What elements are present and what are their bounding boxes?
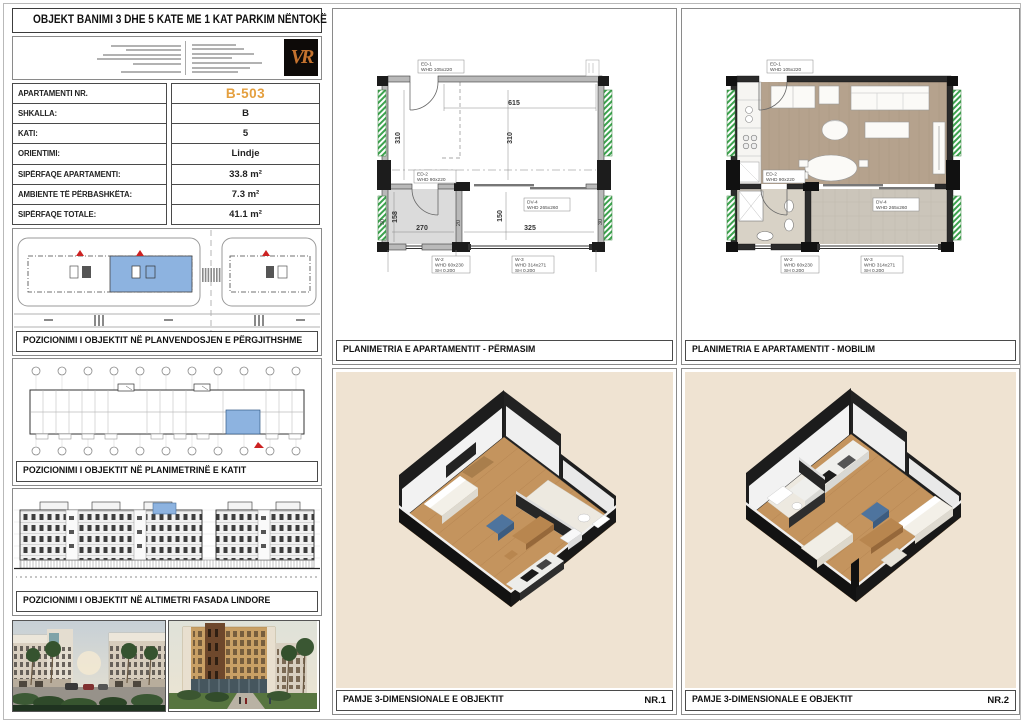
elevation-drawing [14, 490, 320, 592]
svg-text:WHD 265x260: WHD 265x260 [527, 205, 559, 211]
window-w3 [817, 244, 941, 250]
row-label: APARTAMENTI NR. [13, 84, 166, 104]
caption-site-plan: POZICIONIMI I OBJEKTIT NË PLANVENDOSJEN … [16, 331, 318, 352]
row-label: AMBIENTE TË PËRBASHKËTA: [13, 185, 166, 205]
window-w3 [468, 244, 592, 250]
svg-text:SH 0.200: SH 0.200 [515, 268, 535, 274]
view3d-1-background [336, 372, 673, 688]
apartment-table-values: B-503 B 5 Lindje 33.8 m² 7.3 m² 41.1 m² [171, 83, 320, 225]
svg-text:WHD 60x230: WHD 60x230 [784, 263, 813, 269]
label-w3: W-3 WHD 314x271 SH 0.200 [861, 256, 903, 274]
floor-plan-drawing [14, 360, 320, 462]
sliding-door-dv4 [474, 184, 586, 189]
elevation-ground [14, 560, 320, 580]
label-dv4: DV-4 WHD 265x260 [524, 198, 570, 211]
plan-furnished-panel: ED-1 WHD 105x220 ED-2 WHD 90x220 DV-4 WH… [681, 8, 1020, 365]
svg-text:30: 30 [598, 219, 604, 225]
elevation-highlight-unit [153, 503, 176, 514]
site-plan-drawing [14, 230, 320, 332]
caption-view3d-1: PAMJE 3-DIMENSIONALE E OBJEKTIT NR.1 [336, 690, 673, 711]
view3d-panel-2: PAMJE 3-DIMENSIONALE E OBJEKTIT NR.2 [681, 368, 1020, 715]
elevation-building-right [216, 502, 314, 560]
caption-plan-furnished: PLANIMETRIA E APARTAMENTIT - MOBILIM [685, 340, 1016, 361]
site-building-left [28, 250, 192, 292]
firm-info-left [91, 42, 181, 76]
svg-text:WHD 265x260: WHD 265x260 [876, 205, 908, 211]
project-info-block: VR [12, 36, 322, 80]
svg-text:158: 158 [392, 211, 399, 223]
svg-text:W-2: W-2 [435, 257, 444, 263]
render-photo-1 [12, 620, 166, 712]
svg-text:ED-1: ED-1 [421, 62, 432, 68]
apartment-table-labels: APARTAMENTI NR. SHKALLA: KATI: ORIENTIMI… [12, 83, 167, 225]
site-building-right [230, 250, 310, 292]
iso-apartment-2 [746, 388, 961, 602]
svg-text:150: 150 [497, 210, 504, 222]
label-corner [586, 60, 599, 76]
label-w2: W-2 WHD 60x230 SH 0.200 [781, 256, 819, 274]
label-w2: W-2 WHD 60x230 SH 0.200 [432, 256, 470, 274]
svg-text:W-3: W-3 [515, 257, 524, 263]
apartment-number: B-503 [172, 84, 319, 104]
view3d-panel-1: PAMJE 3-DIMENSIONALE E OBJEKTIT NR.1 [332, 368, 677, 715]
firm-info-right [185, 41, 272, 75]
plan-dimensions-drawing: 615 310 310 158 270 20 150 325 30 30 ED-… [334, 10, 675, 341]
svg-text:WHD 90x220: WHD 90x220 [766, 177, 795, 183]
company-logo: VR [284, 39, 318, 76]
label-ed2: ED-2 WHD 90x220 [414, 170, 456, 183]
row-label: ORIENTIMI: [13, 144, 166, 164]
dashed-lines [392, 82, 596, 170]
svg-text:W-3: W-3 [864, 257, 873, 263]
balcony-floor [811, 189, 947, 244]
kitchen [737, 82, 761, 184]
svg-text:310: 310 [507, 132, 514, 144]
svg-text:WHD 90x220: WHD 90x220 [417, 177, 446, 183]
svg-text:WHD 314x271: WHD 314x271 [864, 263, 896, 269]
svg-text:DV-4: DV-4 [527, 200, 538, 206]
floor-highlight-unit [226, 410, 260, 434]
row-value: 33.8 m² [172, 165, 319, 185]
view3d-2-number: NR.2 [987, 692, 1009, 709]
plan-furnished-drawing: ED-1 WHD 105x220 ED-2 WHD 90x220 DV-4 WH… [683, 10, 1018, 341]
iso-apartment-1 [399, 390, 616, 607]
svg-text:SH 0.200: SH 0.200 [864, 268, 884, 274]
label-dv4: DV-4 WHD 265x260 [873, 198, 919, 211]
apartment-table: APARTAMENTI NR. SHKALLA: KATI: ORIENTIMI… [12, 83, 320, 225]
site-marker-red [136, 250, 144, 256]
svg-text:SH 0.200: SH 0.200 [435, 268, 455, 274]
svg-text:WHD 105x220: WHD 105x220 [421, 67, 453, 73]
building-outline [30, 384, 304, 448]
sheet-title: OBJEKT BANIMI 3 DHE 5 KATE ME 1 KAT PARK… [12, 8, 322, 33]
svg-text:270: 270 [416, 225, 428, 232]
window-w2 [755, 246, 771, 250]
svg-text:615: 615 [508, 100, 520, 107]
site-marker-red [262, 250, 270, 256]
svg-text:WHD 105x220: WHD 105x220 [770, 67, 802, 73]
view3d-1-number: NR.1 [644, 692, 666, 709]
plan-dimensions-panel: 615 310 310 158 270 20 150 325 30 30 ED-… [332, 8, 677, 365]
svg-text:ED-2: ED-2 [417, 172, 428, 178]
sheet-title-text: OBJEKT BANIMI 3 DHE 5 KATE ME 1 KAT PARK… [33, 9, 327, 32]
elevation-building-left [20, 502, 202, 560]
floor-position-panel: POZICIONIMI I OBJEKTIT NË PLANIMETRINË E… [12, 358, 322, 486]
site-plan-panel: POZICIONIMI I OBJEKTIT NË PLANVENDOSJEN … [12, 228, 322, 356]
svg-text:ED-2: ED-2 [766, 172, 777, 178]
sliding-door-dv4 [823, 184, 935, 189]
label-w3: W-3 WHD 314x271 SH 0.200 [512, 256, 554, 274]
row-label: SIPËRFAQE APARTAMENTI: [13, 165, 166, 185]
window-w2 [406, 246, 422, 250]
render1-cars [65, 683, 108, 690]
render-photo-2 [168, 620, 320, 712]
svg-text:20: 20 [456, 220, 462, 226]
door-ed1 [410, 82, 438, 110]
render-photos [12, 620, 320, 712]
row-value: 41.1 m² [172, 205, 319, 224]
logo-monogram: VR [291, 46, 312, 68]
label-ed1: ED-1 WHD 105x220 [418, 60, 464, 73]
caption-floor-plan: POZICIONIMI I OBJEKTIT NË PLANIMETRINË E… [16, 461, 318, 482]
caption-view3d-2: PAMJE 3-DIMENSIONALE E OBJEKTIT NR.2 [685, 690, 1016, 711]
view3d-2-background [685, 372, 1016, 688]
svg-text:W-2: W-2 [784, 257, 793, 263]
elevation-panel: POZICIONIMI I OBJEKTIT NË ALTIMETRI FASA… [12, 488, 322, 616]
site-marker-red [76, 250, 84, 256]
svg-text:WHD 314x271: WHD 314x271 [515, 263, 547, 269]
drawing-sheet: OBJEKT BANIMI 3 DHE 5 KATE ME 1 KAT PARK… [0, 0, 1024, 723]
svg-text:WHD 60x230: WHD 60x230 [435, 263, 464, 269]
svg-text:SH 0.200: SH 0.200 [784, 268, 804, 274]
svg-text:310: 310 [395, 132, 402, 144]
row-value: B [172, 104, 319, 124]
row-value: 5 [172, 124, 319, 144]
caption-elevation: POZICIONIMI I OBJEKTIT NË ALTIMETRI FASA… [16, 591, 318, 612]
label-ed1: ED-1 WHD 105x220 [767, 60, 813, 73]
svg-text:DV-4: DV-4 [876, 200, 887, 206]
site-highlight-unit [110, 256, 192, 292]
label-ed2: ED-2 WHD 90x220 [763, 170, 805, 183]
row-value: 7.3 m² [172, 185, 319, 205]
svg-text:30: 30 [380, 219, 386, 225]
floor-marker-red [254, 442, 264, 448]
row-label: SHKALLA: [13, 104, 166, 124]
svg-text:325: 325 [524, 225, 536, 232]
row-label: KATI: [13, 124, 166, 144]
row-label: SIPËRFAQE TOTALE: [13, 205, 166, 224]
caption-plan-dimensions: PLANIMETRIA E APARTAMENTIT - PËRMASIM [336, 340, 673, 361]
row-value: Lindje [172, 144, 319, 164]
svg-text:ED-1: ED-1 [770, 62, 781, 68]
